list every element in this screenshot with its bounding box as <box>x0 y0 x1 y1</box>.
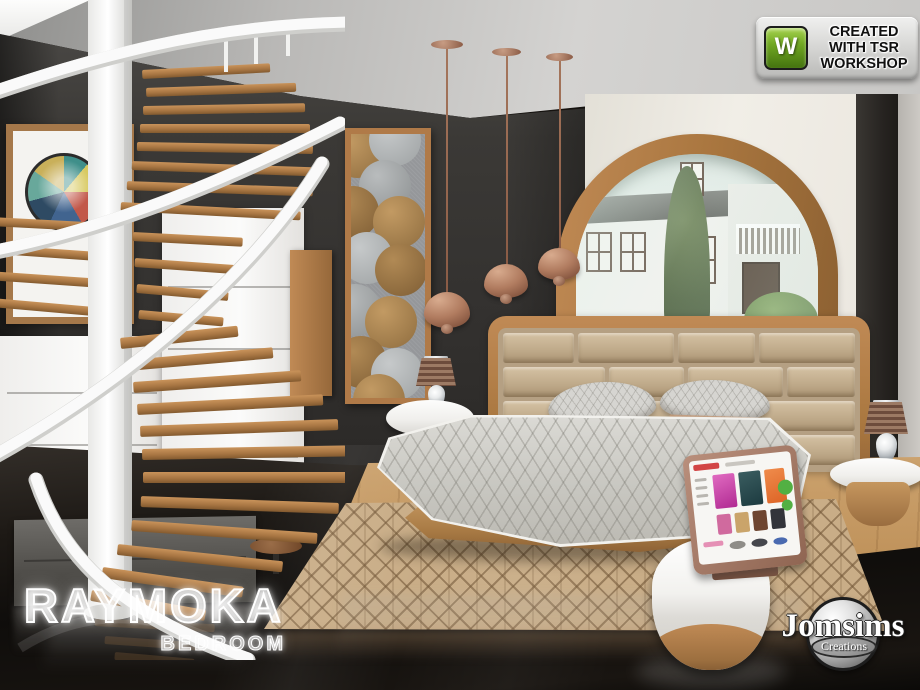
pendant-canopy <box>492 48 521 56</box>
lamp-shade <box>864 402 908 434</box>
green-badge <box>777 479 793 495</box>
pendant-shade <box>484 264 528 298</box>
set-title-block: RAYMOKA BEDROOM <box>24 578 286 656</box>
creator-subtitle: Creations <box>811 636 877 658</box>
tablet-screen <box>689 451 801 565</box>
app-tile-teal <box>738 470 763 506</box>
badge-line-2: WITH TSR <box>816 40 912 56</box>
staircase-railing <box>0 20 345 660</box>
pendant-cord <box>559 58 561 250</box>
lamp-shade <box>416 358 456 386</box>
pendant-shade <box>538 248 580 280</box>
pendant-cord <box>506 54 508 266</box>
table-lamp-right <box>864 402 908 434</box>
pouf-wood-base <box>652 624 770 670</box>
tsr-workshop-text: CREATED WITH TSR WORKSHOP <box>816 24 912 73</box>
tsr-workshop-badge: W CREATED WITH TSR WORKSHOP <box>756 17 918 79</box>
table-lamp-left <box>416 358 456 386</box>
pendant-shade <box>424 292 470 328</box>
spiral-staircase <box>0 0 345 660</box>
app-tile-pink <box>712 473 737 509</box>
badge-line-1: CREATED <box>816 24 912 40</box>
staircase-column <box>84 0 136 620</box>
pendant-canopy <box>431 40 463 49</box>
set-title: RAYMOKA <box>24 578 286 633</box>
tablet <box>682 444 808 575</box>
set-category: BEDROOM <box>24 633 286 656</box>
pendant-cord <box>446 46 448 296</box>
tsr-workshop-icon: W <box>764 26 808 70</box>
badge-line-3: WORKSHOP <box>816 56 912 72</box>
pendant-canopy <box>546 53 573 61</box>
tsr-product-screenshot: W CREATED WITH TSR WORKSHOP RAYMOKA BEDR… <box>0 0 920 690</box>
